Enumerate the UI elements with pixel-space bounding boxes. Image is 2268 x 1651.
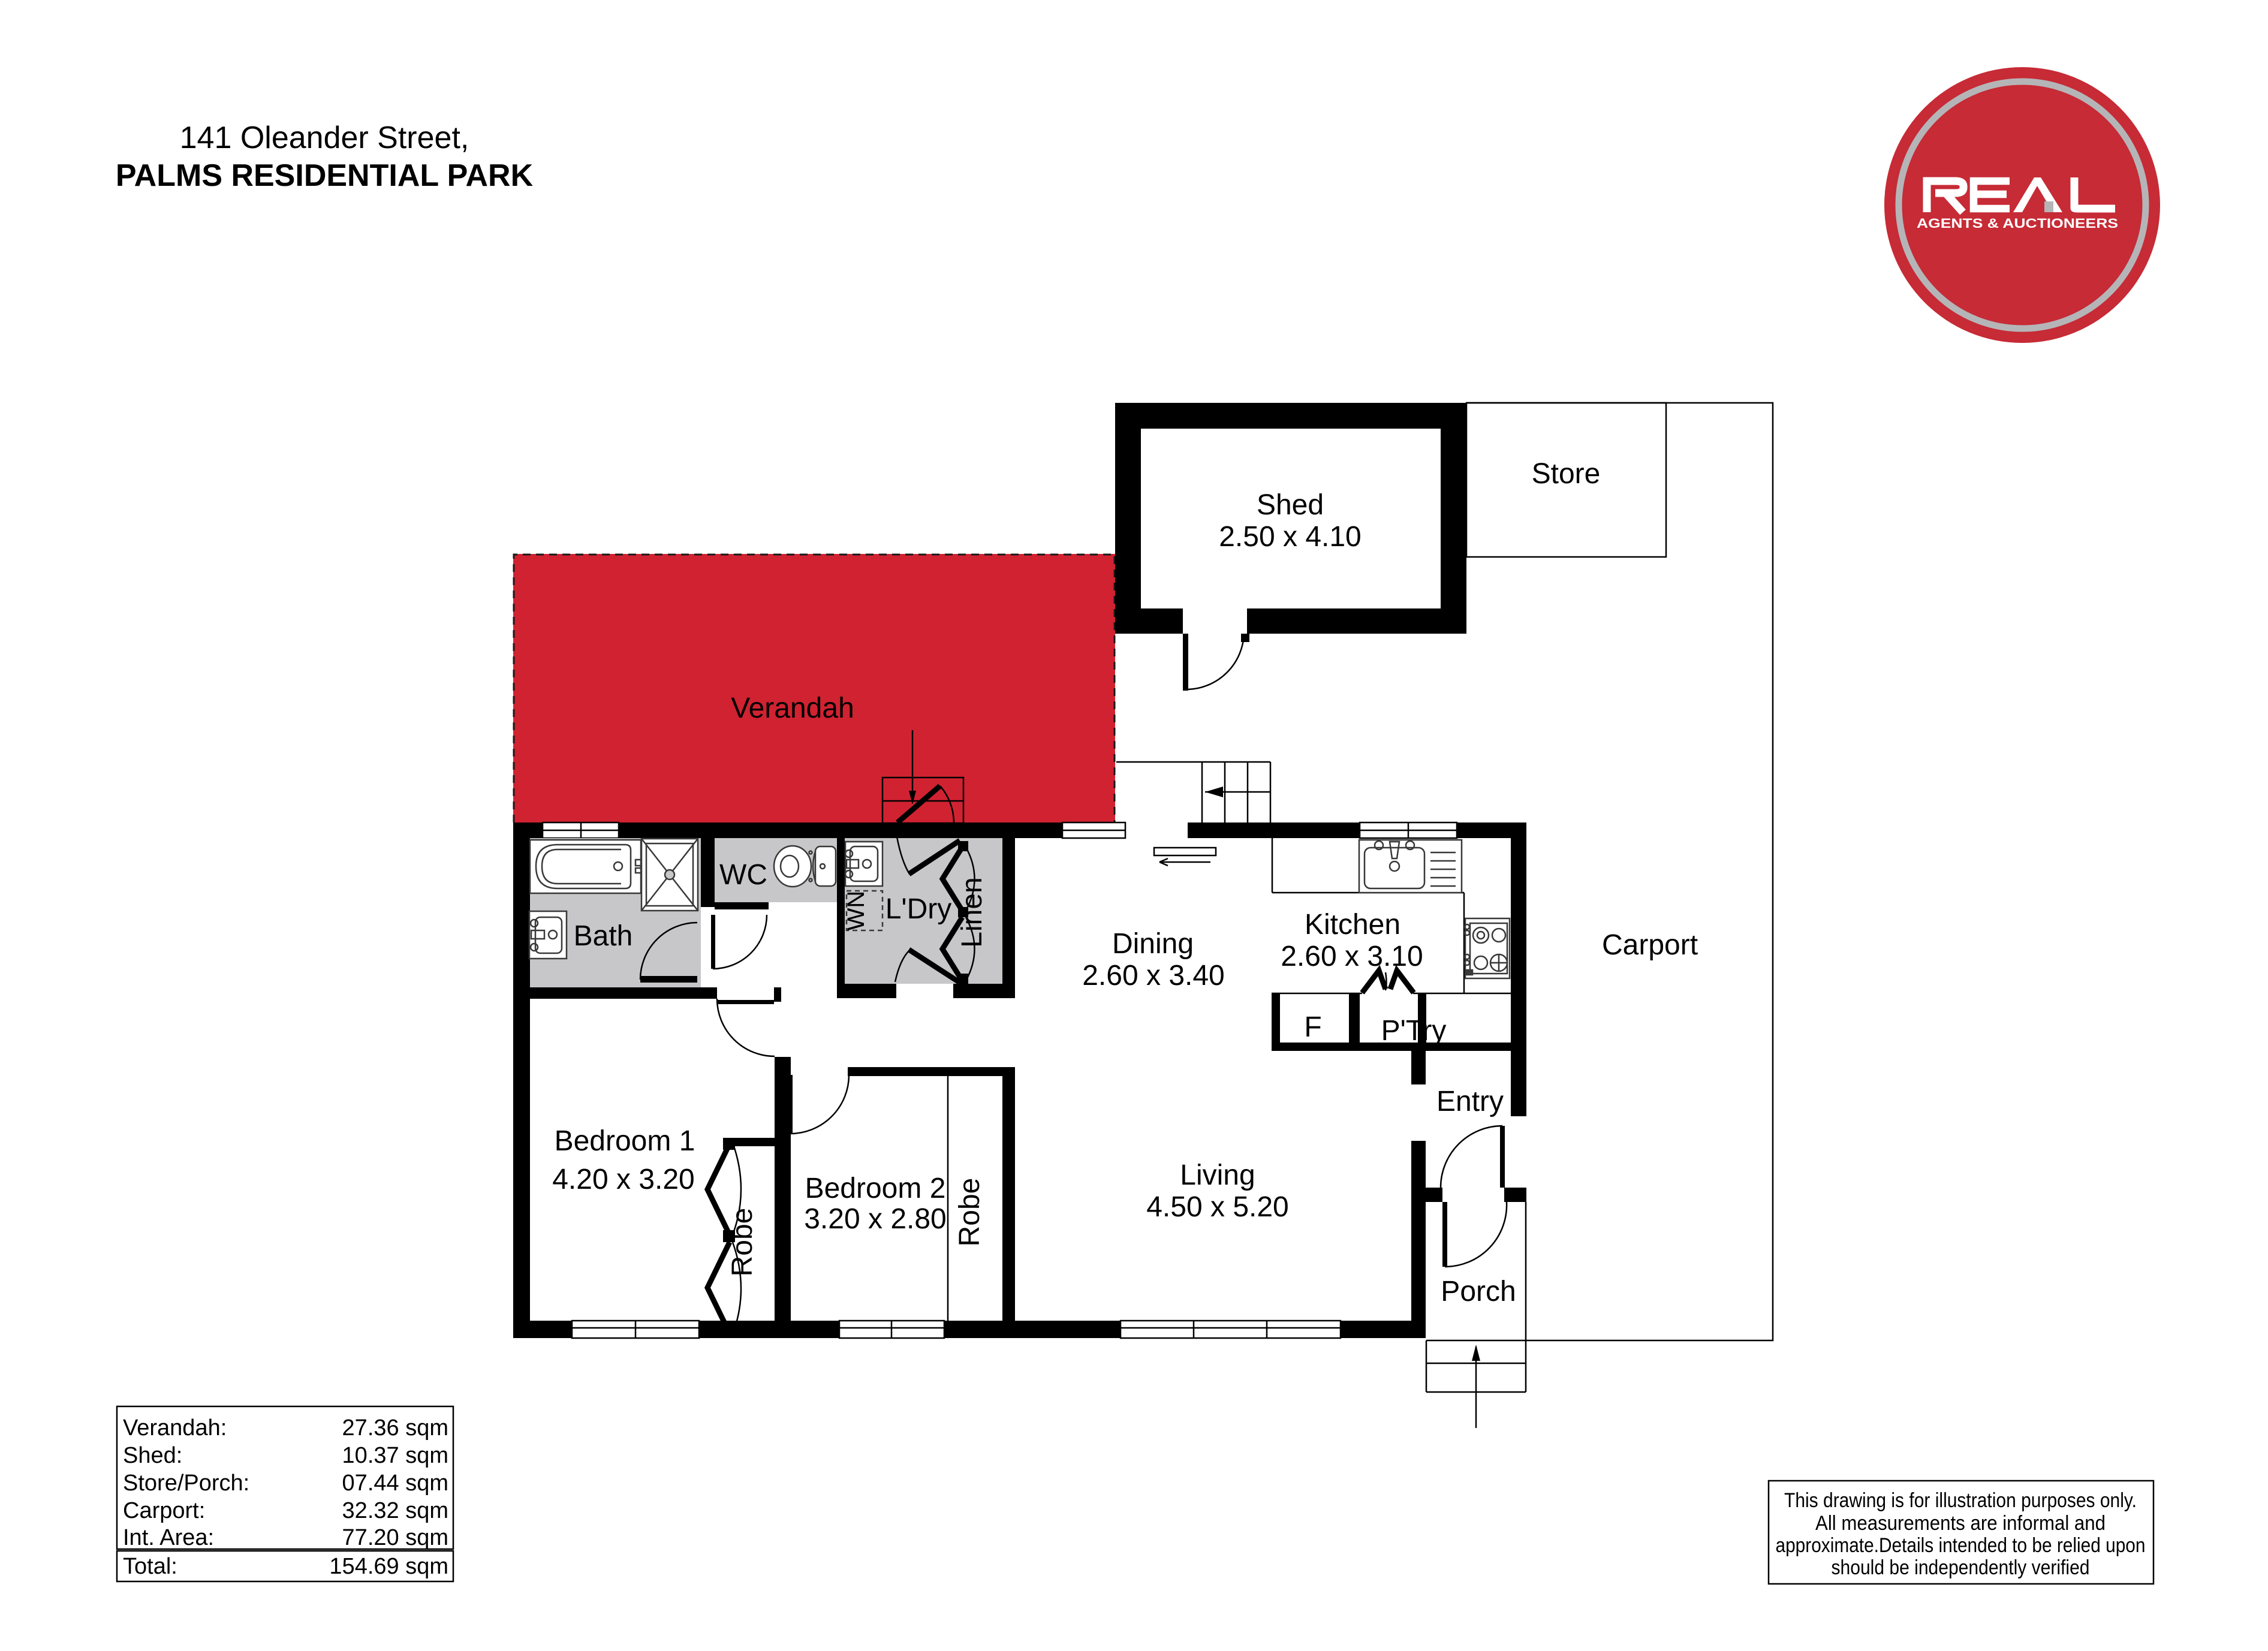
svg-text:AGENTS & AUCTIONEERS: AGENTS & AUCTIONEERS xyxy=(1917,216,2118,231)
svg-text:approximate.Details intended t: approximate.Details intended to be relie… xyxy=(1776,1534,2146,1557)
svg-text:154.69 sqm: 154.69 sqm xyxy=(329,1554,448,1579)
svg-text:Robe: Robe xyxy=(954,1178,986,1247)
svg-text:2.60 x 3.40: 2.60 x 3.40 xyxy=(1082,960,1225,992)
svg-text:F: F xyxy=(1304,1011,1321,1043)
svg-text:All measurements are informal: All measurements are informal and xyxy=(1815,1512,2106,1535)
svg-text:should be independently verifi: should be independently verified xyxy=(1832,1556,2090,1579)
svg-text:This drawing is for illustrati: This drawing is for illustration purpose… xyxy=(1784,1489,2137,1512)
svg-text:Verandah: Verandah xyxy=(731,692,854,724)
svg-text:Kitchen: Kitchen xyxy=(1305,909,1400,941)
svg-text:141 Oleander Street,: 141 Oleander Street, xyxy=(180,120,469,155)
svg-text:Total:: Total: xyxy=(123,1554,177,1579)
svg-text:2.50 x 4.10: 2.50 x 4.10 xyxy=(1219,521,1362,553)
svg-text:Carport:: Carport: xyxy=(123,1498,205,1523)
svg-text:Bedroom 1: Bedroom 1 xyxy=(555,1125,695,1157)
svg-text:Bath: Bath xyxy=(574,920,633,952)
svg-text:Verandah:: Verandah: xyxy=(123,1415,227,1441)
svg-text:Robe: Robe xyxy=(727,1208,758,1277)
svg-text:Linen: Linen xyxy=(956,877,988,947)
svg-text:Shed: Shed xyxy=(1257,489,1324,521)
svg-text:Porch: Porch xyxy=(1441,1276,1516,1307)
svg-text:P'Try: P'Try xyxy=(1381,1015,1447,1047)
svg-text:Int. Area:: Int. Area: xyxy=(123,1525,214,1550)
svg-text:Shed:: Shed: xyxy=(123,1443,182,1468)
svg-text:Entry: Entry xyxy=(1436,1086,1504,1117)
svg-text:07.44 sqm: 07.44 sqm xyxy=(342,1471,448,1496)
svg-text:27.36 sqm: 27.36 sqm xyxy=(342,1415,448,1441)
svg-text:WN: WN xyxy=(843,891,869,931)
svg-text:4.20 x 3.20: 4.20 x 3.20 xyxy=(552,1164,695,1195)
svg-text:Store/Porch:: Store/Porch: xyxy=(123,1471,249,1496)
svg-text:32.32 sqm: 32.32 sqm xyxy=(342,1498,448,1523)
svg-text:Bedroom 2: Bedroom 2 xyxy=(805,1173,946,1204)
svg-text:Carport: Carport xyxy=(1602,929,1698,961)
svg-text:2.60 x 3.10: 2.60 x 3.10 xyxy=(1281,941,1423,972)
svg-text:3.20 x 2.80: 3.20 x 2.80 xyxy=(804,1203,947,1235)
svg-text:10.37 sqm: 10.37 sqm xyxy=(342,1443,448,1468)
svg-text:Store: Store xyxy=(1532,458,1601,490)
svg-text:77.20 sqm: 77.20 sqm xyxy=(342,1525,448,1550)
svg-text:4.50 x 5.20: 4.50 x 5.20 xyxy=(1146,1191,1289,1223)
svg-text:L'Dry: L'Dry xyxy=(885,893,952,925)
svg-text:Dining: Dining xyxy=(1112,928,1194,960)
svg-text:PALMS RESIDENTIAL PARK: PALMS RESIDENTIAL PARK xyxy=(116,158,534,193)
svg-text:Living: Living xyxy=(1180,1159,1255,1191)
svg-text:WC: WC xyxy=(719,859,767,891)
